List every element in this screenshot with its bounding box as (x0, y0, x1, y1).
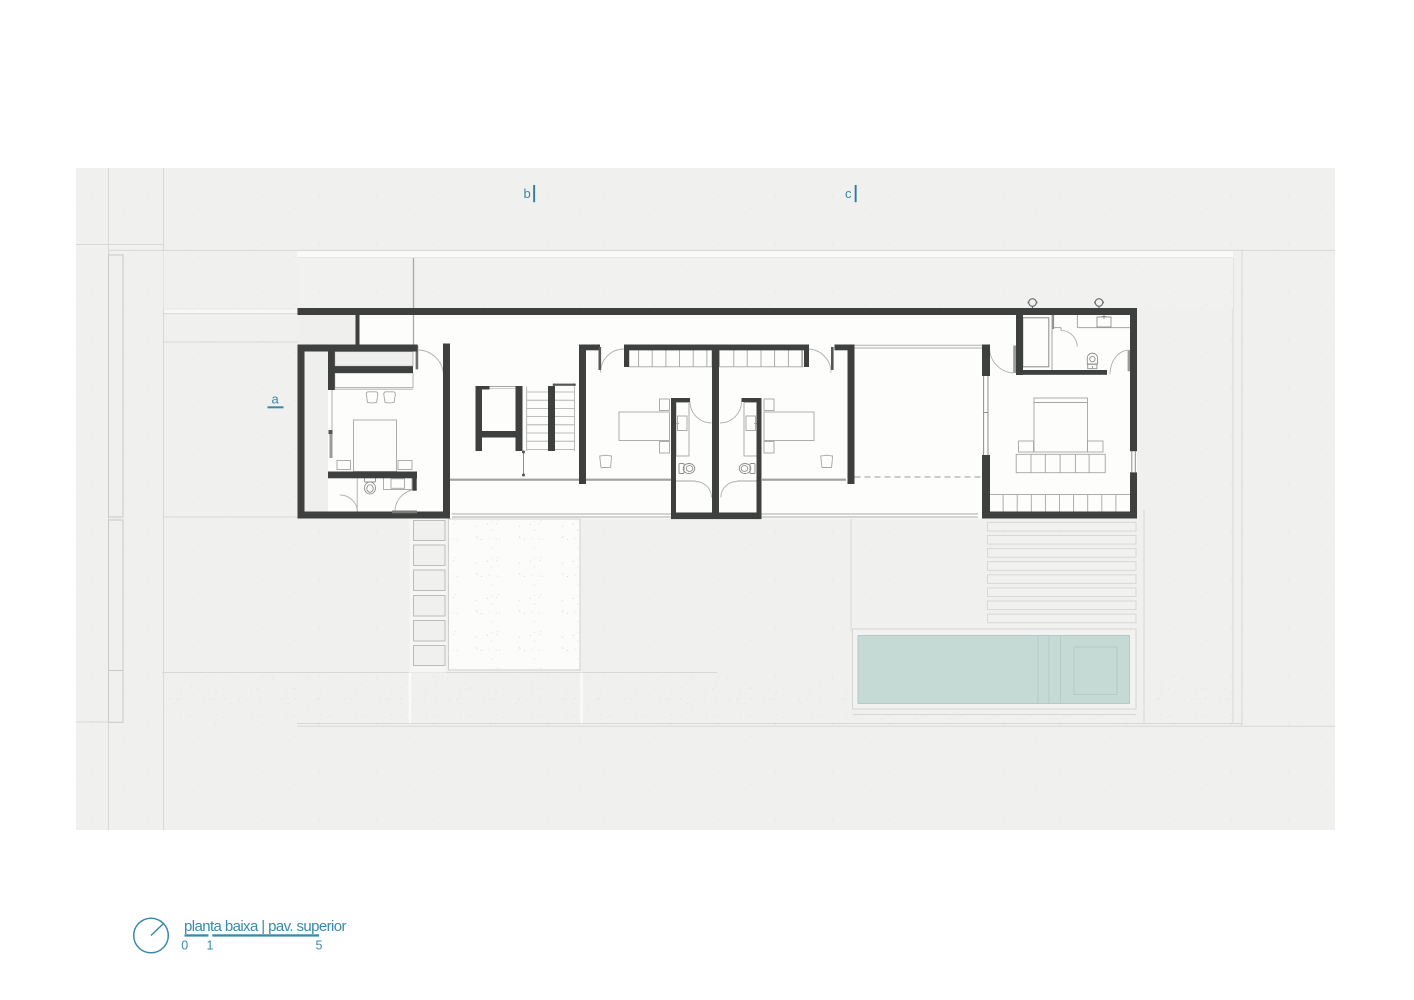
svg-text:0: 0 (181, 939, 188, 953)
svg-text:planta baixa | pav. superior: planta baixa | pav. superior (184, 918, 347, 935)
svg-text:c: c (845, 186, 852, 201)
svg-text:a: a (272, 392, 280, 407)
svg-text:1: 1 (207, 939, 214, 953)
svg-text:b: b (524, 186, 531, 201)
svg-text:5: 5 (316, 939, 323, 953)
